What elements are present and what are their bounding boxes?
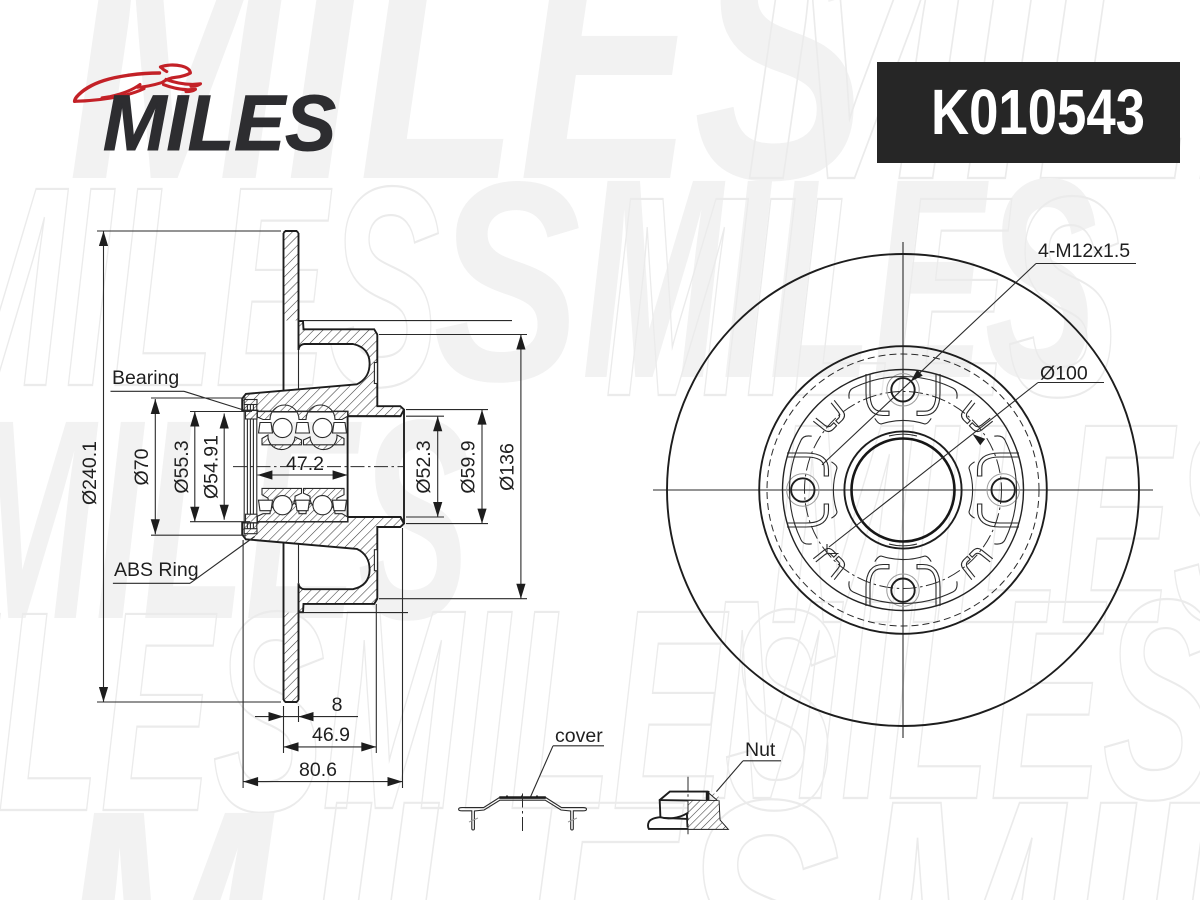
svg-text:ABS Ring: ABS Ring — [114, 559, 199, 581]
svg-text:Nut: Nut — [745, 739, 776, 761]
svg-text:Ø240.1: Ø240.1 — [79, 441, 101, 505]
svg-text:Ø70: Ø70 — [131, 448, 153, 485]
svg-text:MILES: MILES — [103, 78, 336, 167]
svg-text:Ø59.9: Ø59.9 — [458, 440, 480, 493]
svg-text:4-M12x1.5: 4-M12x1.5 — [1038, 240, 1130, 262]
svg-text:Ø52.3: Ø52.3 — [413, 440, 435, 493]
svg-text:K010543: K010543 — [931, 76, 1145, 148]
svg-text:Ø136: Ø136 — [497, 443, 519, 491]
svg-text:MIL: MIL — [855, 726, 1200, 900]
svg-text:Ø100: Ø100 — [1040, 363, 1088, 385]
svg-text:Bearing: Bearing — [112, 367, 179, 389]
svg-text:Ø54.91: Ø54.91 — [201, 435, 223, 499]
svg-text:47.2: 47.2 — [286, 453, 324, 475]
svg-text:8: 8 — [332, 694, 343, 716]
svg-text:46.9: 46.9 — [312, 724, 350, 746]
svg-text:80.6: 80.6 — [299, 759, 337, 781]
svg-text:Ø55.3: Ø55.3 — [171, 440, 193, 493]
svg-text:cover: cover — [555, 725, 603, 747]
